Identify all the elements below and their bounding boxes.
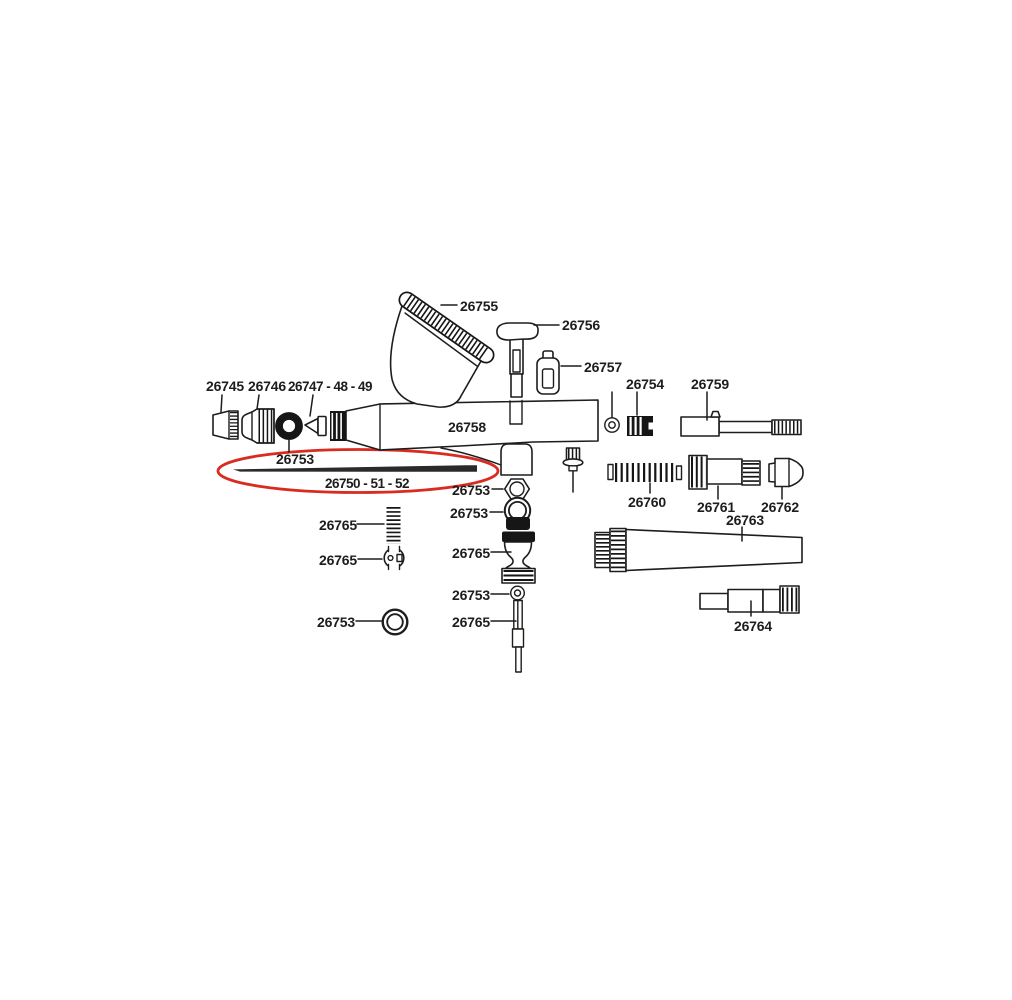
part-screw-26754 xyxy=(627,416,654,436)
part-trigger-26756 xyxy=(497,323,538,397)
label-26764: 26764 xyxy=(734,618,772,634)
label-26760: 26760 xyxy=(628,494,666,510)
part-cap-26762 xyxy=(769,459,803,487)
part-oring-26753-head xyxy=(276,413,303,440)
part-nozzle-cap-26746 xyxy=(242,409,274,443)
label-26755: 26755 xyxy=(460,298,498,314)
part-oring-26753-left xyxy=(383,610,408,635)
label-26753-left: 26753 xyxy=(317,614,355,630)
part-air-valve-26765 xyxy=(502,517,535,583)
leader-26747 xyxy=(310,395,313,416)
leader-26745 xyxy=(221,395,222,412)
label-26750-51-52: 26750 - 51 - 52 xyxy=(325,476,409,491)
part-knurled-ring xyxy=(330,411,346,441)
label-26754: 26754 xyxy=(626,376,664,392)
label-26765-clip: 26765 xyxy=(319,552,357,568)
leader-26746 xyxy=(257,395,259,409)
label-26753-head: 26753 xyxy=(276,451,314,467)
label-26758: 26758 xyxy=(448,419,486,435)
label-26759: 26759 xyxy=(691,376,729,392)
part-hex-nut-26753 xyxy=(505,479,530,499)
label-26746: 26746 xyxy=(248,378,286,394)
label-26753-oring: 26753 xyxy=(450,505,488,521)
part-spring-guide-26761 xyxy=(689,456,760,490)
part-handle-26763 xyxy=(595,529,802,572)
label-26762: 26762 xyxy=(761,499,799,515)
label-26756: 26756 xyxy=(562,317,600,333)
label-26763: 26763 xyxy=(726,512,764,528)
part-eyelet-ring xyxy=(605,418,619,432)
part-body-26758 xyxy=(346,400,598,475)
label-26765-valve: 26765 xyxy=(452,545,490,561)
part-shaft-26764 xyxy=(700,586,799,613)
part-rod-26759 xyxy=(681,412,801,437)
part-bolt xyxy=(563,448,583,471)
part-spring-26760 xyxy=(608,465,682,480)
part-oring-26753-small xyxy=(511,586,525,600)
part-needle-26750-51-52 xyxy=(233,465,477,472)
valve-housing xyxy=(501,444,532,475)
airbrush-parts-diagram: 26755 26756 26757 26745 26746 26747 - 48… xyxy=(0,0,1012,1000)
label-26753-nut: 26753 xyxy=(452,482,490,498)
part-lever-26757 xyxy=(537,351,559,394)
label-26765-stem: 26765 xyxy=(452,614,490,630)
part-nozzle-26747 xyxy=(305,417,326,436)
label-26745: 26745 xyxy=(206,378,244,394)
label-26747-48-49: 26747 - 48 - 49 xyxy=(288,379,372,394)
diagram-canvas: 26755 26756 26757 26745 26746 26747 - 48… xyxy=(0,0,1012,1000)
part-valve-stem-26765 xyxy=(513,601,524,673)
part-cup-26755 xyxy=(391,300,486,407)
part-needle-cap-26745 xyxy=(213,411,238,439)
label-26757: 26757 xyxy=(584,359,622,375)
part-clip-26765 xyxy=(384,546,404,570)
label-26765-spring: 26765 xyxy=(319,517,357,533)
label-26753-small: 26753 xyxy=(452,587,490,603)
